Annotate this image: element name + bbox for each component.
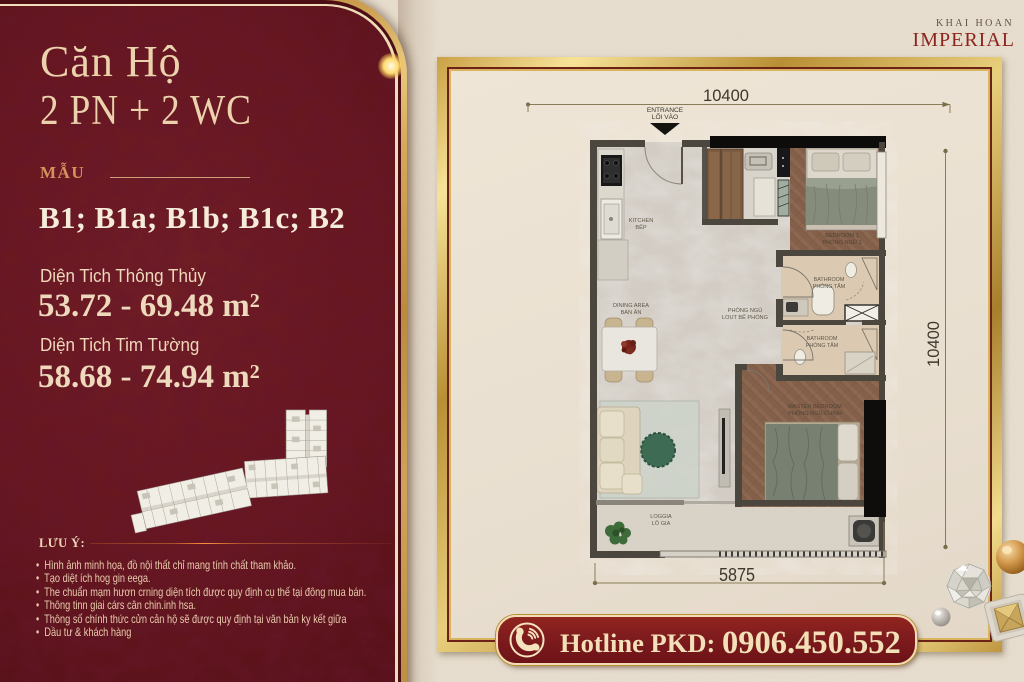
svg-text:5875: 5875: [719, 564, 755, 585]
svg-text:PHÒNG TẮM: PHÒNG TẮM: [813, 282, 846, 290]
svg-text:BATHROOM: BATHROOM: [807, 336, 838, 342]
svg-text:KITCHEN: KITCHEN: [629, 218, 654, 224]
svg-text:LÔ GIA: LÔ GIA: [652, 520, 671, 527]
svg-text:BÀN ĂN: BÀN ĂN: [621, 309, 642, 316]
svg-text:PHÒNG NGỦ CHÍNH: PHÒNG NGỦ CHÍNH: [788, 410, 842, 417]
svg-text:BATHROOM: BATHROOM: [814, 277, 845, 283]
svg-text:LOGGIA: LOGGIA: [650, 514, 672, 520]
svg-text:10400: 10400: [924, 321, 943, 367]
svg-text:MASTER BEDROOM: MASTER BEDROOM: [788, 404, 842, 410]
svg-text:LOUT BẾ PHÒNG: LOUT BẾ PHÒNG: [722, 314, 768, 321]
svg-text:DINING AREA: DINING AREA: [613, 303, 649, 309]
svg-text:PHÒNG NGỦ 1: PHÒNG NGỦ 1: [822, 239, 861, 246]
svg-text:10400: 10400: [703, 86, 749, 105]
svg-text:PHÒNG NGỦ: PHÒNG NGỦ: [728, 307, 763, 314]
svg-text:PHÒNG TẮM: PHÒNG TẮM: [806, 341, 839, 349]
svg-text:BEDROOM 1: BEDROOM 1: [825, 233, 859, 239]
svg-text:BẾP: BẾP: [635, 224, 646, 231]
